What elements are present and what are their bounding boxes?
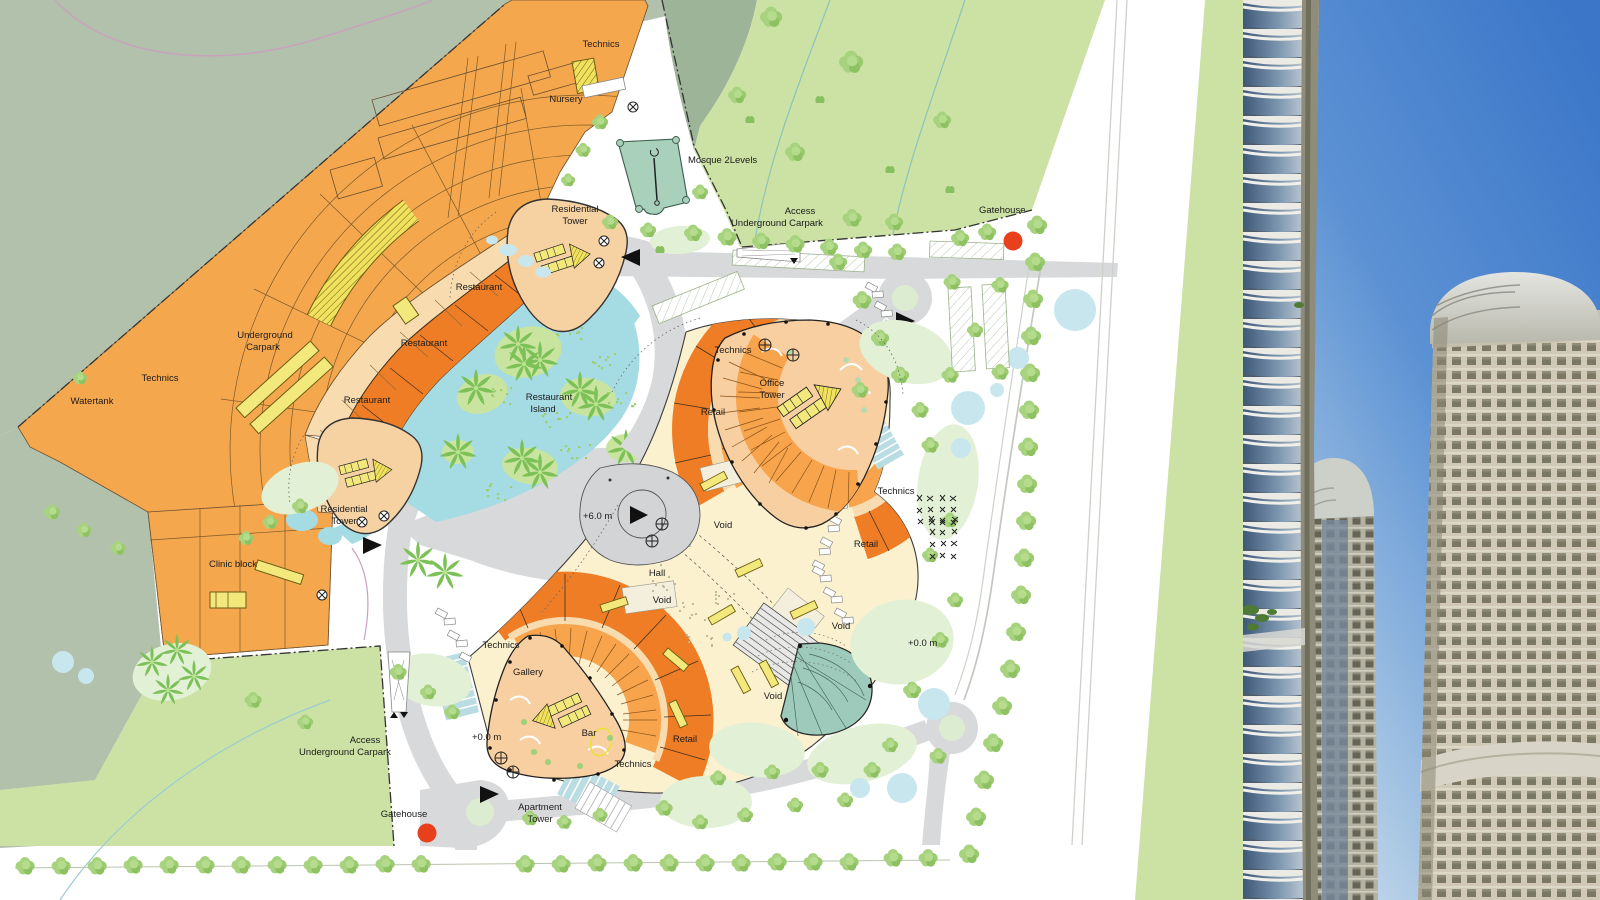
svg-text:+6.0 m: +6.0 m	[583, 511, 612, 522]
svg-text:Technics: Technics	[142, 373, 179, 384]
svg-text:Residential: Residential	[321, 504, 368, 515]
svg-text:Underground Carpark: Underground Carpark	[299, 747, 391, 758]
svg-text:Technics: Technics	[615, 759, 652, 770]
svg-text:Technics: Technics	[878, 486, 915, 497]
svg-text:+0.0 m: +0.0 m	[908, 638, 937, 649]
svg-text:Restaurant: Restaurant	[401, 338, 448, 349]
svg-text:Bar: Bar	[582, 728, 597, 739]
svg-text:Restaurant: Restaurant	[456, 282, 503, 293]
svg-text:Office: Office	[760, 378, 785, 389]
svg-text:Gatehouse: Gatehouse	[979, 205, 1025, 216]
svg-text:Underground Carpark: Underground Carpark	[731, 218, 823, 229]
svg-text:Void: Void	[714, 520, 733, 531]
svg-text:Tower: Tower	[527, 814, 552, 825]
svg-text:Hall: Hall	[649, 568, 665, 579]
svg-text:Technics: Technics	[583, 39, 620, 50]
svg-text:Gatehouse: Gatehouse	[381, 809, 427, 820]
svg-text:+0.0 m: +0.0 m	[472, 732, 501, 743]
svg-text:Void: Void	[764, 691, 783, 702]
svg-text:Island: Island	[530, 404, 555, 415]
svg-text:Nursery: Nursery	[549, 94, 583, 105]
svg-text:Restaurant: Restaurant	[344, 395, 391, 406]
svg-text:Tower: Tower	[331, 516, 356, 527]
svg-text:Restaurant: Restaurant	[526, 392, 573, 403]
svg-text:Mosque 2Levels: Mosque 2Levels	[688, 155, 757, 166]
svg-text:Retail: Retail	[673, 734, 697, 745]
svg-text:Tower: Tower	[562, 216, 587, 227]
svg-text:Residential: Residential	[552, 204, 599, 215]
svg-text:Retail: Retail	[854, 539, 878, 550]
svg-text:Underground: Underground	[237, 330, 292, 341]
svg-text:Retail: Retail	[701, 407, 725, 418]
svg-text:Apartment: Apartment	[518, 802, 562, 813]
svg-text:Carpark: Carpark	[246, 342, 280, 353]
svg-text:Gallery: Gallery	[513, 667, 543, 678]
svg-text:Access: Access	[350, 735, 381, 746]
svg-text:Technics: Technics	[483, 640, 520, 651]
svg-text:Clinic block: Clinic block	[209, 559, 257, 570]
svg-text:Tower: Tower	[759, 390, 784, 401]
svg-text:Void: Void	[832, 621, 851, 632]
svg-text:Technics: Technics	[715, 345, 752, 356]
svg-text:Access: Access	[785, 206, 816, 217]
svg-text:Void: Void	[653, 595, 672, 606]
svg-text:Watertank: Watertank	[71, 396, 114, 407]
